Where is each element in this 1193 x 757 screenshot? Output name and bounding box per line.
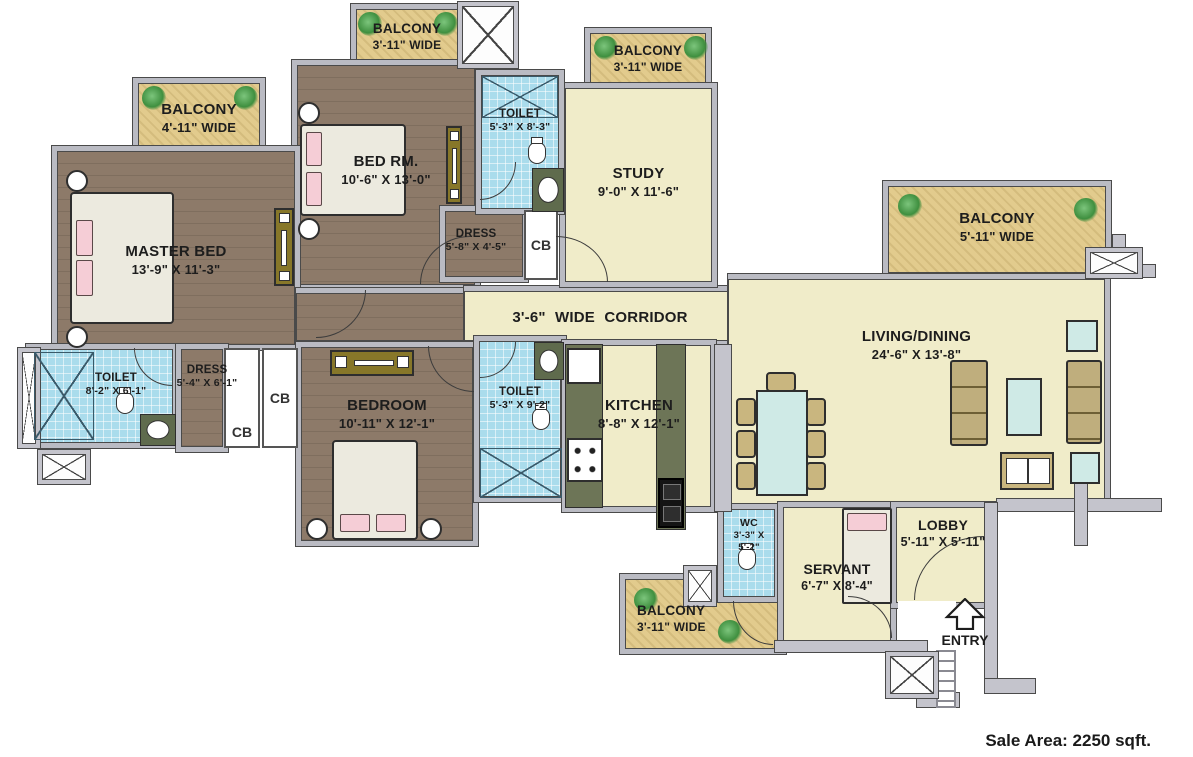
shower-area [480,448,562,498]
wall-stub [984,678,1036,694]
washbasin [534,342,564,380]
shaft-bottom-mid [684,566,716,606]
kitchen-sink [658,478,684,528]
stove [567,438,603,482]
shaft-porch [886,652,938,698]
closet-label: CB [232,424,252,440]
dining-chair [806,398,826,426]
room-label: WC 3'-3" X 5'-2" [723,517,775,554]
room-label: STUDY 9'-0" X 11'-6" [565,165,712,200]
washbasin [532,168,564,212]
room-label: SERVANT 6'-7" X 8'-4" [783,561,891,594]
entry-label: ENTRY [930,632,1000,648]
room-label: LOBBY 5'-11" X 5'-11" [896,517,990,550]
room-label: TOILET 5'-3" X 9'-2" [479,385,561,413]
closet-label: CB [531,237,551,253]
entry-steps [936,650,956,708]
side-table [298,102,320,124]
loveseat [1000,452,1054,490]
side-table [66,326,88,348]
dining-chair [736,398,756,426]
corridor-label: 3'-6" WIDE CORRIDOR [464,309,736,328]
side-table [420,518,442,540]
shaft-right [1086,248,1142,278]
sofa [950,360,988,446]
room-label: TOILET 5'-3" X 8'-3" [481,107,559,135]
room-label: KITCHEN 8'-8" X 12'-1" [567,397,711,432]
room-label: DRESS 5'-8" X 4'-5" [445,227,507,255]
pillow [340,514,370,532]
room-wc: WC 3'-3" X 5'-2" [718,504,780,602]
shaft-elevator-top [458,2,518,68]
balcony-label: BALCONY 3'-11" WIDE [356,21,458,53]
side-table-living [1070,452,1100,484]
side-table [66,170,88,192]
sale-area-label: Sale Area: 2250 sqft. [985,731,1151,751]
balcony-label: BALCONY 4'-11" WIDE [138,101,260,136]
pillow [376,514,406,532]
side-table [298,218,320,240]
entry-arrow-icon [944,598,986,630]
balcony-label: BALCONY 5'-11" WIDE [888,210,1106,245]
balcony-label: BALCONY 3'-11" WIDE [625,603,793,635]
pillow [847,513,887,531]
toilet-fixture [528,142,546,164]
room-label: BED RM. 10'-6" X 13'-0" [297,153,475,188]
dresser [330,350,414,376]
floor-plan-canvas: BALCONY 4'-11" WIDE BALCONY 3'-11" WIDE … [0,0,1193,757]
dining-chair [736,430,756,458]
shaft-left-small [38,450,90,484]
room-label: MASTER BED 13'-9" X 11'-3" [57,243,295,278]
dining-table [756,390,808,496]
fridge [567,348,601,384]
sofa [1066,360,1102,444]
coffee-table [1006,378,1042,436]
room-label: DRESS 5'-4" X 6'-1" [155,363,259,391]
balcony-label: BALCONY 3'-11" WIDE [590,43,706,75]
dining-chair [766,372,796,392]
dining-chair [806,462,826,490]
closet-cb-left-2: CB [262,348,298,448]
room-label: LIVING/DINING 24'-6" X 13'-8" [728,328,1105,363]
wall-kitchen-living [714,344,732,512]
dining-chair [736,462,756,490]
washbasin [140,414,176,446]
room-label: BEDROOM 10'-11" X 12'-1" [301,397,473,432]
dining-chair [806,430,826,458]
room-dress-left: DRESS 5'-4" X 6'-1" [176,344,228,452]
closet-cb-top: CB [524,210,558,280]
closet-label: CB [270,390,290,406]
side-table [306,518,328,540]
